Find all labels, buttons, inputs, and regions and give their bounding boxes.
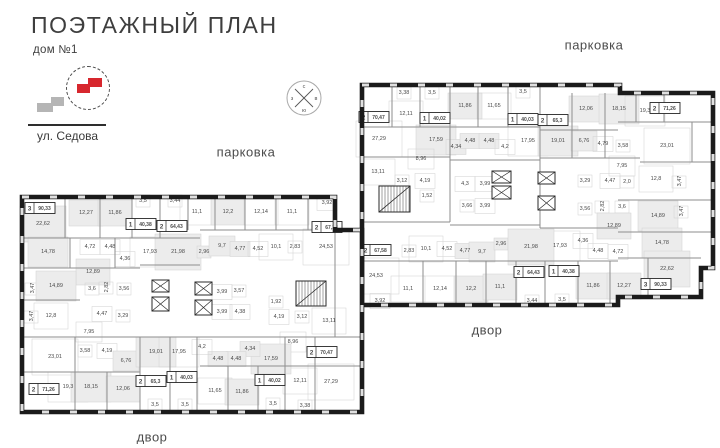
room-area-label: 4,2 [501, 144, 509, 150]
apartment-badge: 265,3 [136, 376, 166, 387]
room-area-label: 4,38 [235, 309, 246, 315]
room-area-label: 12,89 [607, 223, 621, 229]
badge-rooms-count: 2 [517, 269, 521, 276]
room-area-label: 3,99 [480, 203, 491, 209]
room-area-label: 19,01 [551, 138, 565, 144]
room-area-label: 3,12 [397, 178, 408, 184]
badge-rooms-count: 1 [258, 377, 262, 384]
elevator-shaft-icon [492, 171, 511, 183]
room-area-label: 3,58 [618, 143, 629, 149]
room-area-label: 11,86 [586, 283, 599, 289]
room-area-label: 2,83 [404, 248, 415, 254]
room-area-label: 3,29 [118, 313, 129, 319]
room-area-label: 17,95 [521, 138, 535, 144]
area-label: парковка [565, 38, 624, 53]
badge-area-value: 90,33 [38, 206, 51, 212]
staircase-icon [296, 281, 326, 306]
floor-plan-page: ПОЭТАЖНЫЙ ПЛАН дом №1 ул. Седова с в ю з… [0, 0, 720, 448]
room-area-label: 11,1 [192, 209, 202, 215]
room-area-label: 3,58 [80, 348, 91, 354]
badge-area-value: 40,02 [433, 116, 446, 122]
area-label: двор [472, 323, 503, 338]
badge-area-value: 65,3 [151, 379, 161, 385]
room-area-label: 17,93 [553, 243, 567, 249]
room-area-label: 3,38 [399, 90, 410, 96]
room-area-label: 4,34 [245, 346, 256, 352]
badge-rooms-count: 1 [511, 116, 515, 123]
room-area-label: 11,1 [287, 209, 297, 215]
elevator-shaft-icon [538, 196, 555, 210]
room-area-label: 8,96 [416, 156, 427, 162]
badge-area-value: 40,03 [521, 117, 534, 123]
room-area-label: 27,29 [372, 136, 386, 142]
room-area-label: 17,93 [143, 249, 157, 255]
room-area-label: 23,01 [48, 354, 62, 360]
badge-area-value: 70,47 [372, 115, 385, 121]
room-area-label: 4,47 [605, 178, 616, 184]
badge-area-value: 70,47 [320, 350, 333, 356]
badge-area-value: 71,26 [42, 387, 55, 393]
room-area-label: 3,47 [677, 176, 683, 187]
room-area-label: 14,89 [651, 213, 665, 219]
badge-rooms-count: 2 [160, 223, 164, 230]
room-area-label: 4,47 [97, 311, 108, 317]
room-area-label: 18,15 [612, 106, 626, 112]
room-area-label: 6,76 [121, 358, 132, 364]
apartment-badge: 140,38 [549, 266, 579, 277]
badge-area-value: 64,43 [527, 270, 540, 276]
badge-rooms-count: 2 [139, 378, 143, 385]
apartment-badge: 265,3 [538, 115, 568, 126]
room-area-label: 21,98 [524, 244, 538, 250]
staircase-icon [379, 186, 410, 212]
room-area-label: 11,1 [403, 286, 413, 292]
room-area-label: 12,11 [293, 378, 306, 384]
elevator-shaft-icon [152, 280, 169, 292]
badge-area-value: 67,58 [374, 248, 387, 254]
badge-rooms-count: 2 [315, 224, 319, 231]
room-area-label: 2,83 [290, 244, 301, 250]
room-area-label: 7,95 [84, 329, 95, 335]
apartment-badge: 140,03 [508, 114, 538, 125]
badge-rooms-count: 2 [32, 386, 36, 393]
badge-area-value: 64,43 [170, 224, 183, 230]
room-area-label: 3,5 [428, 90, 436, 96]
room-area-label: 3,92 [322, 200, 333, 206]
room-area-label: 3,47 [29, 311, 35, 322]
room-area-label: 3,29 [580, 178, 591, 184]
badge-rooms-count: 2 [310, 349, 314, 356]
room-area-label: 4,48 [465, 138, 476, 144]
room-area-label: 12,2 [466, 286, 477, 292]
room-area-label: 3,47 [30, 283, 36, 294]
elevator-shaft-icon [538, 172, 555, 184]
badge-rooms-count: 2 [653, 105, 657, 112]
room-area-label: 3,5 [181, 402, 189, 408]
room-area-label: 8,96 [288, 339, 299, 345]
badge-area-value: 71,26 [663, 106, 676, 112]
elevator-shaft-icon [195, 300, 212, 315]
room-area-label: 11,86 [235, 389, 248, 395]
room-area-label: 19,3 [63, 384, 74, 390]
room-area-label: 11,86 [108, 210, 121, 216]
badge-rooms-count: 1 [552, 268, 556, 275]
room-area-label: 12,14 [254, 209, 268, 215]
room-area-label: 12,06 [116, 386, 130, 392]
badge-area-value: 65,3 [553, 118, 563, 124]
room-area-label: 12,27 [617, 283, 631, 289]
room-area-label: 14,78 [41, 249, 55, 255]
room-area-label: 3,5 [151, 402, 159, 408]
room-area-label: 19,3 [640, 108, 651, 114]
room-area-label: 3,6 [88, 286, 96, 292]
badge-rooms-count: 1 [170, 374, 174, 381]
apartment-badge: 390,33 [25, 203, 55, 214]
room-area-label: 12,2 [223, 209, 234, 215]
apartment-badge: 140,38 [126, 219, 156, 230]
room-area-label: 4,79 [598, 141, 609, 147]
room-area-label: 4,72 [85, 244, 96, 250]
building-lower: 3,53,4411,112,212,1411,13,9222,6212,2711… [20, 195, 362, 412]
room-area-label: 4,77 [235, 246, 246, 252]
room-area-label: 11,65 [487, 103, 500, 109]
room-area-label: 27,29 [324, 379, 338, 385]
building-upper: 3,383,511,8611,653,512,1127,2917,594,344… [353, 85, 713, 309]
room-area-label: 4,36 [578, 238, 589, 244]
room-area-label: 23,01 [660, 143, 674, 149]
apartment-badge: 271,26 [29, 384, 59, 395]
room-area-label: 4,48 [213, 356, 224, 362]
room-area-label: 11,65 [208, 388, 221, 394]
room-area-label: 11,1 [495, 284, 505, 290]
room-area-label: 4,36 [120, 256, 131, 262]
room-area-label: 12,11 [399, 111, 412, 117]
badge-area-value: 40,38 [139, 222, 152, 228]
room-area-label: 4,77 [460, 248, 471, 254]
room-area-label: 12,27 [79, 210, 93, 216]
room-area-label: 3,57 [234, 288, 245, 294]
room-area-label: 13,11 [322, 318, 335, 324]
room-area-label: 17,95 [172, 349, 186, 355]
room-area-label: 19,01 [149, 349, 163, 355]
apartment-badge: 140,03 [167, 372, 197, 383]
apartment-badge: 140,02 [255, 375, 285, 386]
room-area-label: 3,47 [679, 206, 685, 217]
room-area-label: 3,56 [119, 286, 130, 292]
room-area-label: 3,5 [519, 89, 527, 95]
badge-rooms-count: 1 [129, 221, 133, 228]
room-area-label: 12,89 [86, 269, 100, 275]
room-area-label: 4,48 [231, 356, 242, 362]
room-area-label: 3,5 [269, 401, 277, 407]
room-area-label: 4,19 [274, 314, 285, 320]
room-area-label: 2,0 [623, 179, 631, 185]
room-area-label: 4,19 [102, 348, 113, 354]
room-area-label: 17,59 [264, 356, 278, 362]
room-area-label: 1,52 [422, 193, 433, 199]
room-area-label: 13,11 [371, 169, 384, 175]
apartment-badge: 264,43 [157, 221, 187, 232]
room-area-label: 22,62 [660, 266, 674, 272]
badge-area-value: 40,03 [180, 375, 193, 381]
room-area-label: 2,82 [104, 282, 110, 293]
badge-area-value: 40,38 [562, 269, 575, 275]
badge-rooms-count: 3 [28, 205, 32, 212]
apartment-badge: 264,43 [514, 267, 544, 278]
room-area-label: 6,76 [579, 138, 590, 144]
room-area-label: 1,92 [271, 299, 282, 305]
room-area-label: 3,38 [300, 403, 311, 409]
room-area-label: 2,96 [496, 241, 507, 247]
room-area-label: 4,52 [253, 246, 264, 252]
area-label: двор [137, 430, 168, 445]
floor-plan-canvas: 3,383,511,8611,653,512,1127,2917,594,344… [0, 0, 720, 448]
room-area-label: 9,7 [478, 249, 486, 255]
room-area-label: 24,53 [369, 273, 383, 279]
room-area-label: 3,12 [297, 314, 308, 320]
room-area-label: 4,48 [105, 244, 116, 250]
badge-rooms-count: 1 [423, 115, 427, 122]
room-area-label: 3,99 [480, 181, 491, 187]
room-area-label: 2,82 [600, 201, 606, 212]
room-area-label: 14,89 [49, 283, 63, 289]
elevator-shaft-icon [492, 186, 511, 199]
room-area-label: 18,15 [84, 384, 98, 390]
room-area-label: 3,99 [217, 309, 228, 315]
apartment-badge: 390,33 [641, 279, 671, 290]
room-area-label: 22,62 [36, 221, 50, 227]
room-area-label: 4,48 [484, 138, 495, 144]
badge-rooms-count: 2 [541, 117, 545, 124]
room-area-label: 3,56 [580, 206, 591, 212]
room-area-label: 7,95 [617, 163, 628, 169]
apartment-badge: 267,58 [361, 245, 391, 256]
room-area-label: 12,8 [651, 176, 662, 182]
room-area-label: 12,8 [46, 313, 57, 319]
area-label: парковка [217, 145, 276, 160]
room-area-label: 17,59 [429, 137, 443, 143]
room-area-label: 3,99 [217, 289, 228, 295]
room-area-label: 12,06 [579, 106, 593, 112]
room-area-label: 4,19 [420, 178, 431, 184]
room-area-label: 4,3 [461, 181, 469, 187]
room-area-label: 9,7 [218, 243, 226, 249]
room-area-label: 21,98 [171, 249, 185, 255]
room-area-label: 4,52 [442, 246, 453, 252]
room-area-label: 10,1 [421, 246, 432, 252]
room-area-label: 4,34 [451, 144, 462, 150]
room-area-label: 3,5 [558, 297, 566, 303]
room-area-label: 2,96 [199, 249, 210, 255]
room-area-label: 11,86 [458, 103, 471, 109]
room-area-label: 4,48 [593, 248, 604, 254]
apartment-badge: 270,47 [307, 347, 337, 358]
room-area-label: 3,66 [462, 203, 473, 209]
elevator-shaft-icon [195, 282, 212, 295]
room-area-label: 12,14 [433, 286, 447, 292]
badge-area-value: 40,02 [268, 378, 281, 384]
room-area-label: 14,78 [655, 240, 669, 246]
room-area-label: 4,72 [613, 249, 624, 255]
room-area-label: 24,53 [319, 244, 333, 250]
badge-rooms-count: 3 [644, 281, 648, 288]
elevator-shaft-icon [152, 297, 169, 311]
room-area-label: 3,6 [618, 204, 626, 210]
room-area-label: 4,2 [198, 344, 206, 350]
room-area-label: 10,1 [271, 244, 282, 250]
apartment-badge: 271,26 [650, 103, 680, 114]
apartment-badge: 140,02 [420, 113, 450, 124]
badge-area-value: 90,33 [654, 282, 667, 288]
